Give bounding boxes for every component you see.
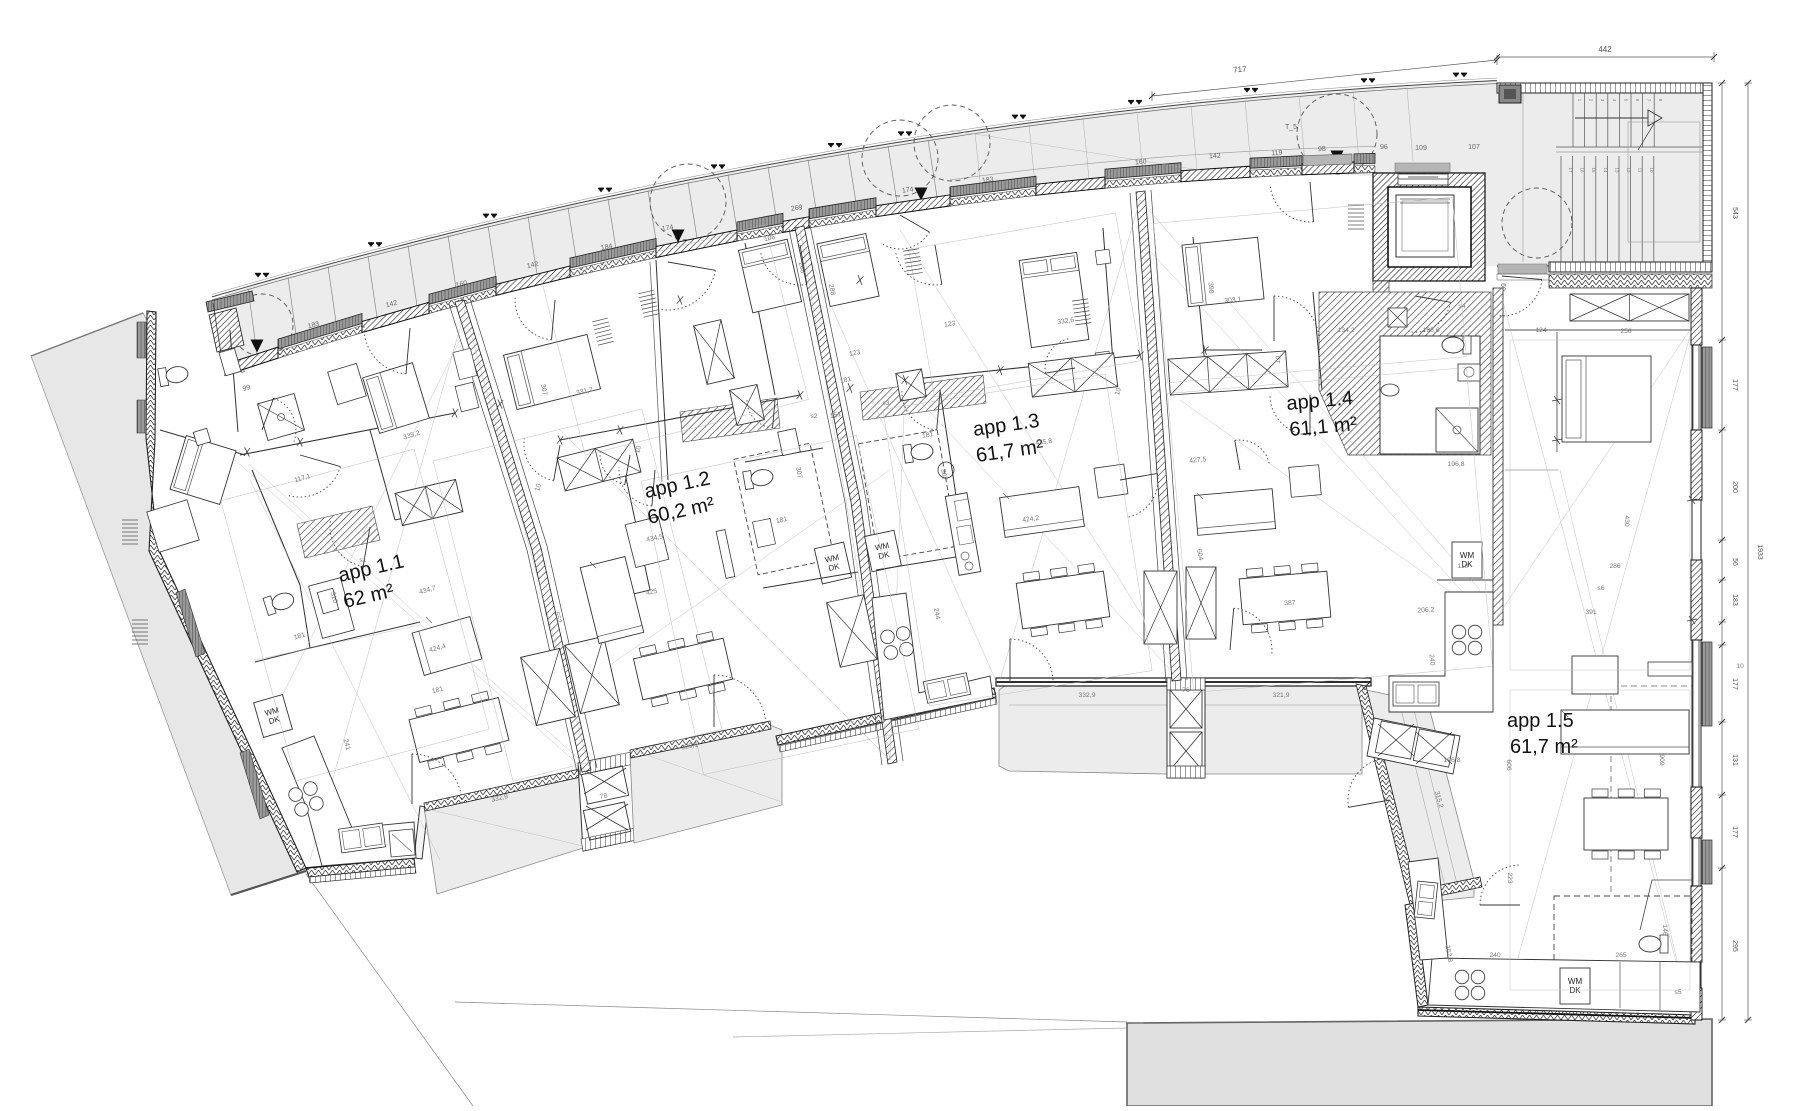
svg-text:61,7 m²: 61,7 m² [1510,736,1578,758]
svg-text:WM: WM [1460,551,1475,560]
svg-text:321,9: 321,9 [1272,692,1289,699]
svg-text:T_5: T_5 [1285,124,1297,131]
svg-text:10: 10 [1274,355,1282,364]
svg-text:DK: DK [1569,986,1581,995]
svg-text:391: 391 [1585,609,1597,616]
svg-text:98: 98 [1318,146,1326,153]
svg-text:s4: s4 [1458,303,1465,310]
svg-text:223: 223 [1506,872,1513,884]
svg-text:196,8: 196,8 [1443,757,1460,764]
svg-text:398: 398 [1207,282,1215,294]
svg-text:177: 177 [1731,826,1738,838]
svg-text:177: 177 [1731,678,1738,690]
svg-text:200: 200 [1731,481,1738,493]
svg-text:303,1: 303,1 [1224,296,1242,304]
svg-text:s5: s5 [1674,989,1681,996]
svg-text:app 1.5: app 1.5 [1507,710,1574,732]
svg-text:146: 146 [1661,924,1668,936]
svg-text:427,5: 427,5 [1189,456,1207,464]
svg-text:295: 295 [1731,940,1738,952]
svg-text:s2: s2 [810,413,817,420]
svg-text:142: 142 [1209,153,1221,161]
svg-text:131: 131 [1731,754,1738,766]
svg-text:10: 10 [1649,167,1654,173]
svg-text:256: 256 [1620,328,1632,335]
svg-text:332,9: 332,9 [1078,692,1095,699]
svg-text:134,2: 134,2 [1337,327,1354,334]
svg-text:15: 15 [1591,167,1596,173]
svg-text:265: 265 [1615,952,1627,959]
svg-text:110: 110 [1458,563,1469,570]
svg-text:56: 56 [1731,558,1738,566]
svg-text:10: 10 [1736,663,1744,670]
svg-text:s3: s3 [882,400,889,407]
svg-text:240: 240 [1428,654,1436,666]
svg-text:s6: s6 [1597,585,1604,592]
svg-text:124: 124 [1535,327,1547,334]
svg-text:196,8: 196,8 [1447,461,1464,468]
svg-text:s1: s1 [359,557,366,564]
svg-text:119: 119 [1271,150,1283,158]
svg-text:909: 909 [1658,754,1665,766]
svg-text:196,6: 196,6 [1422,327,1439,334]
svg-text:387: 387 [1284,600,1296,608]
svg-text:606: 606 [1505,759,1512,771]
svg-text:109: 109 [1415,145,1427,152]
svg-text:76: 76 [1182,687,1190,694]
svg-text:183: 183 [1731,594,1738,606]
svg-text:430: 430 [1623,515,1630,527]
svg-text:543: 543 [1731,207,1738,219]
svg-text:177: 177 [1731,379,1738,391]
svg-text:442: 442 [1598,45,1612,54]
svg-text:107: 107 [1468,144,1480,151]
svg-text:96: 96 [1380,144,1388,151]
svg-text:286: 286 [1609,563,1621,570]
svg-text:717: 717 [1233,65,1247,75]
svg-text:WM: WM [1568,977,1583,986]
svg-text:1933: 1933 [1756,544,1763,560]
svg-text:240: 240 [1489,952,1501,959]
svg-text:206,2: 206,2 [1417,607,1435,615]
